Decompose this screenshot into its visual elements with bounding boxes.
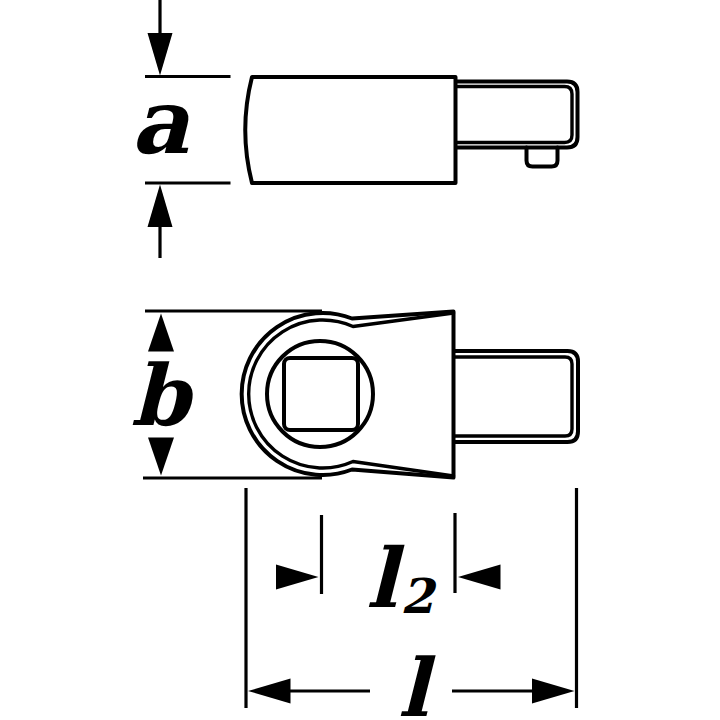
technical-drawing: a b l2 <box>0 0 720 720</box>
drive-square-hole <box>284 358 358 430</box>
dim-label-l2: l2 <box>366 530 437 626</box>
release-pin <box>527 148 558 167</box>
plan-view-head-chamfer <box>249 313 454 476</box>
plan-view-tang-outer <box>455 351 578 442</box>
arrow-right-icon <box>276 565 319 590</box>
side-view <box>245 77 577 183</box>
dimension-a: a <box>131 0 231 258</box>
plan-view-head-outer <box>242 312 454 478</box>
dim-label-a: a <box>131 68 191 174</box>
dim-label-l: l <box>398 641 436 720</box>
dim-label-l2-subscript: 2 <box>400 568 437 624</box>
drawing-canvas: a b l2 <box>0 0 720 720</box>
arrow-left-icon <box>248 679 291 704</box>
dim-label-l2-base: l <box>366 530 405 626</box>
arrow-right-icon <box>532 679 575 704</box>
arrow-left-icon <box>458 565 501 590</box>
plan-view-tang-chamfer <box>455 357 572 436</box>
arrow-up-icon <box>148 185 173 228</box>
dimension-b: b <box>131 311 322 478</box>
side-view-tang-chamfer <box>456 87 572 143</box>
side-view-body <box>245 77 455 183</box>
dimension-l2: l2 <box>276 513 501 626</box>
side-view-tang-outer <box>456 82 578 148</box>
dim-label-b: b <box>131 346 195 445</box>
plan-view <box>242 312 578 478</box>
